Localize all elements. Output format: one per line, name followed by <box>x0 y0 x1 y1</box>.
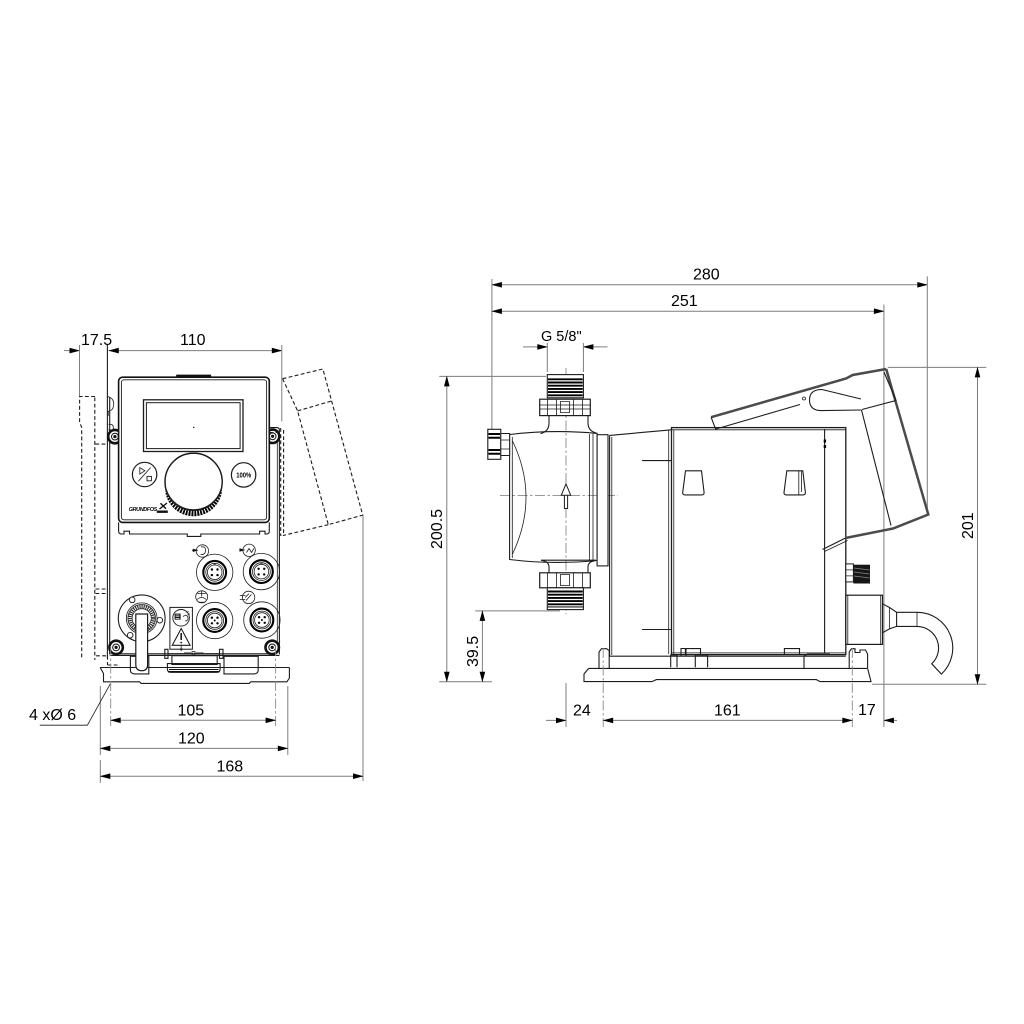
svg-text:4 xØ 6: 4 xØ 6 <box>29 707 76 724</box>
svg-text:201: 201 <box>960 512 977 539</box>
svg-text:161: 161 <box>714 703 741 720</box>
svg-text:100%: 100% <box>236 471 251 480</box>
svg-text:168: 168 <box>217 758 244 775</box>
svg-text:251: 251 <box>671 293 698 310</box>
svg-text:17: 17 <box>858 702 876 719</box>
svg-text:110: 110 <box>180 332 206 349</box>
svg-text:24: 24 <box>573 703 591 720</box>
svg-text:39.5: 39.5 <box>465 636 482 667</box>
svg-text:G 5/8": G 5/8" <box>541 329 582 345</box>
svg-text:280: 280 <box>693 267 720 284</box>
svg-text:200.5: 200.5 <box>429 509 446 549</box>
svg-text:105: 105 <box>178 703 205 720</box>
svg-text:120: 120 <box>178 731 205 748</box>
svg-text:GRUNDFOS: GRUNDFOS <box>129 507 158 513</box>
